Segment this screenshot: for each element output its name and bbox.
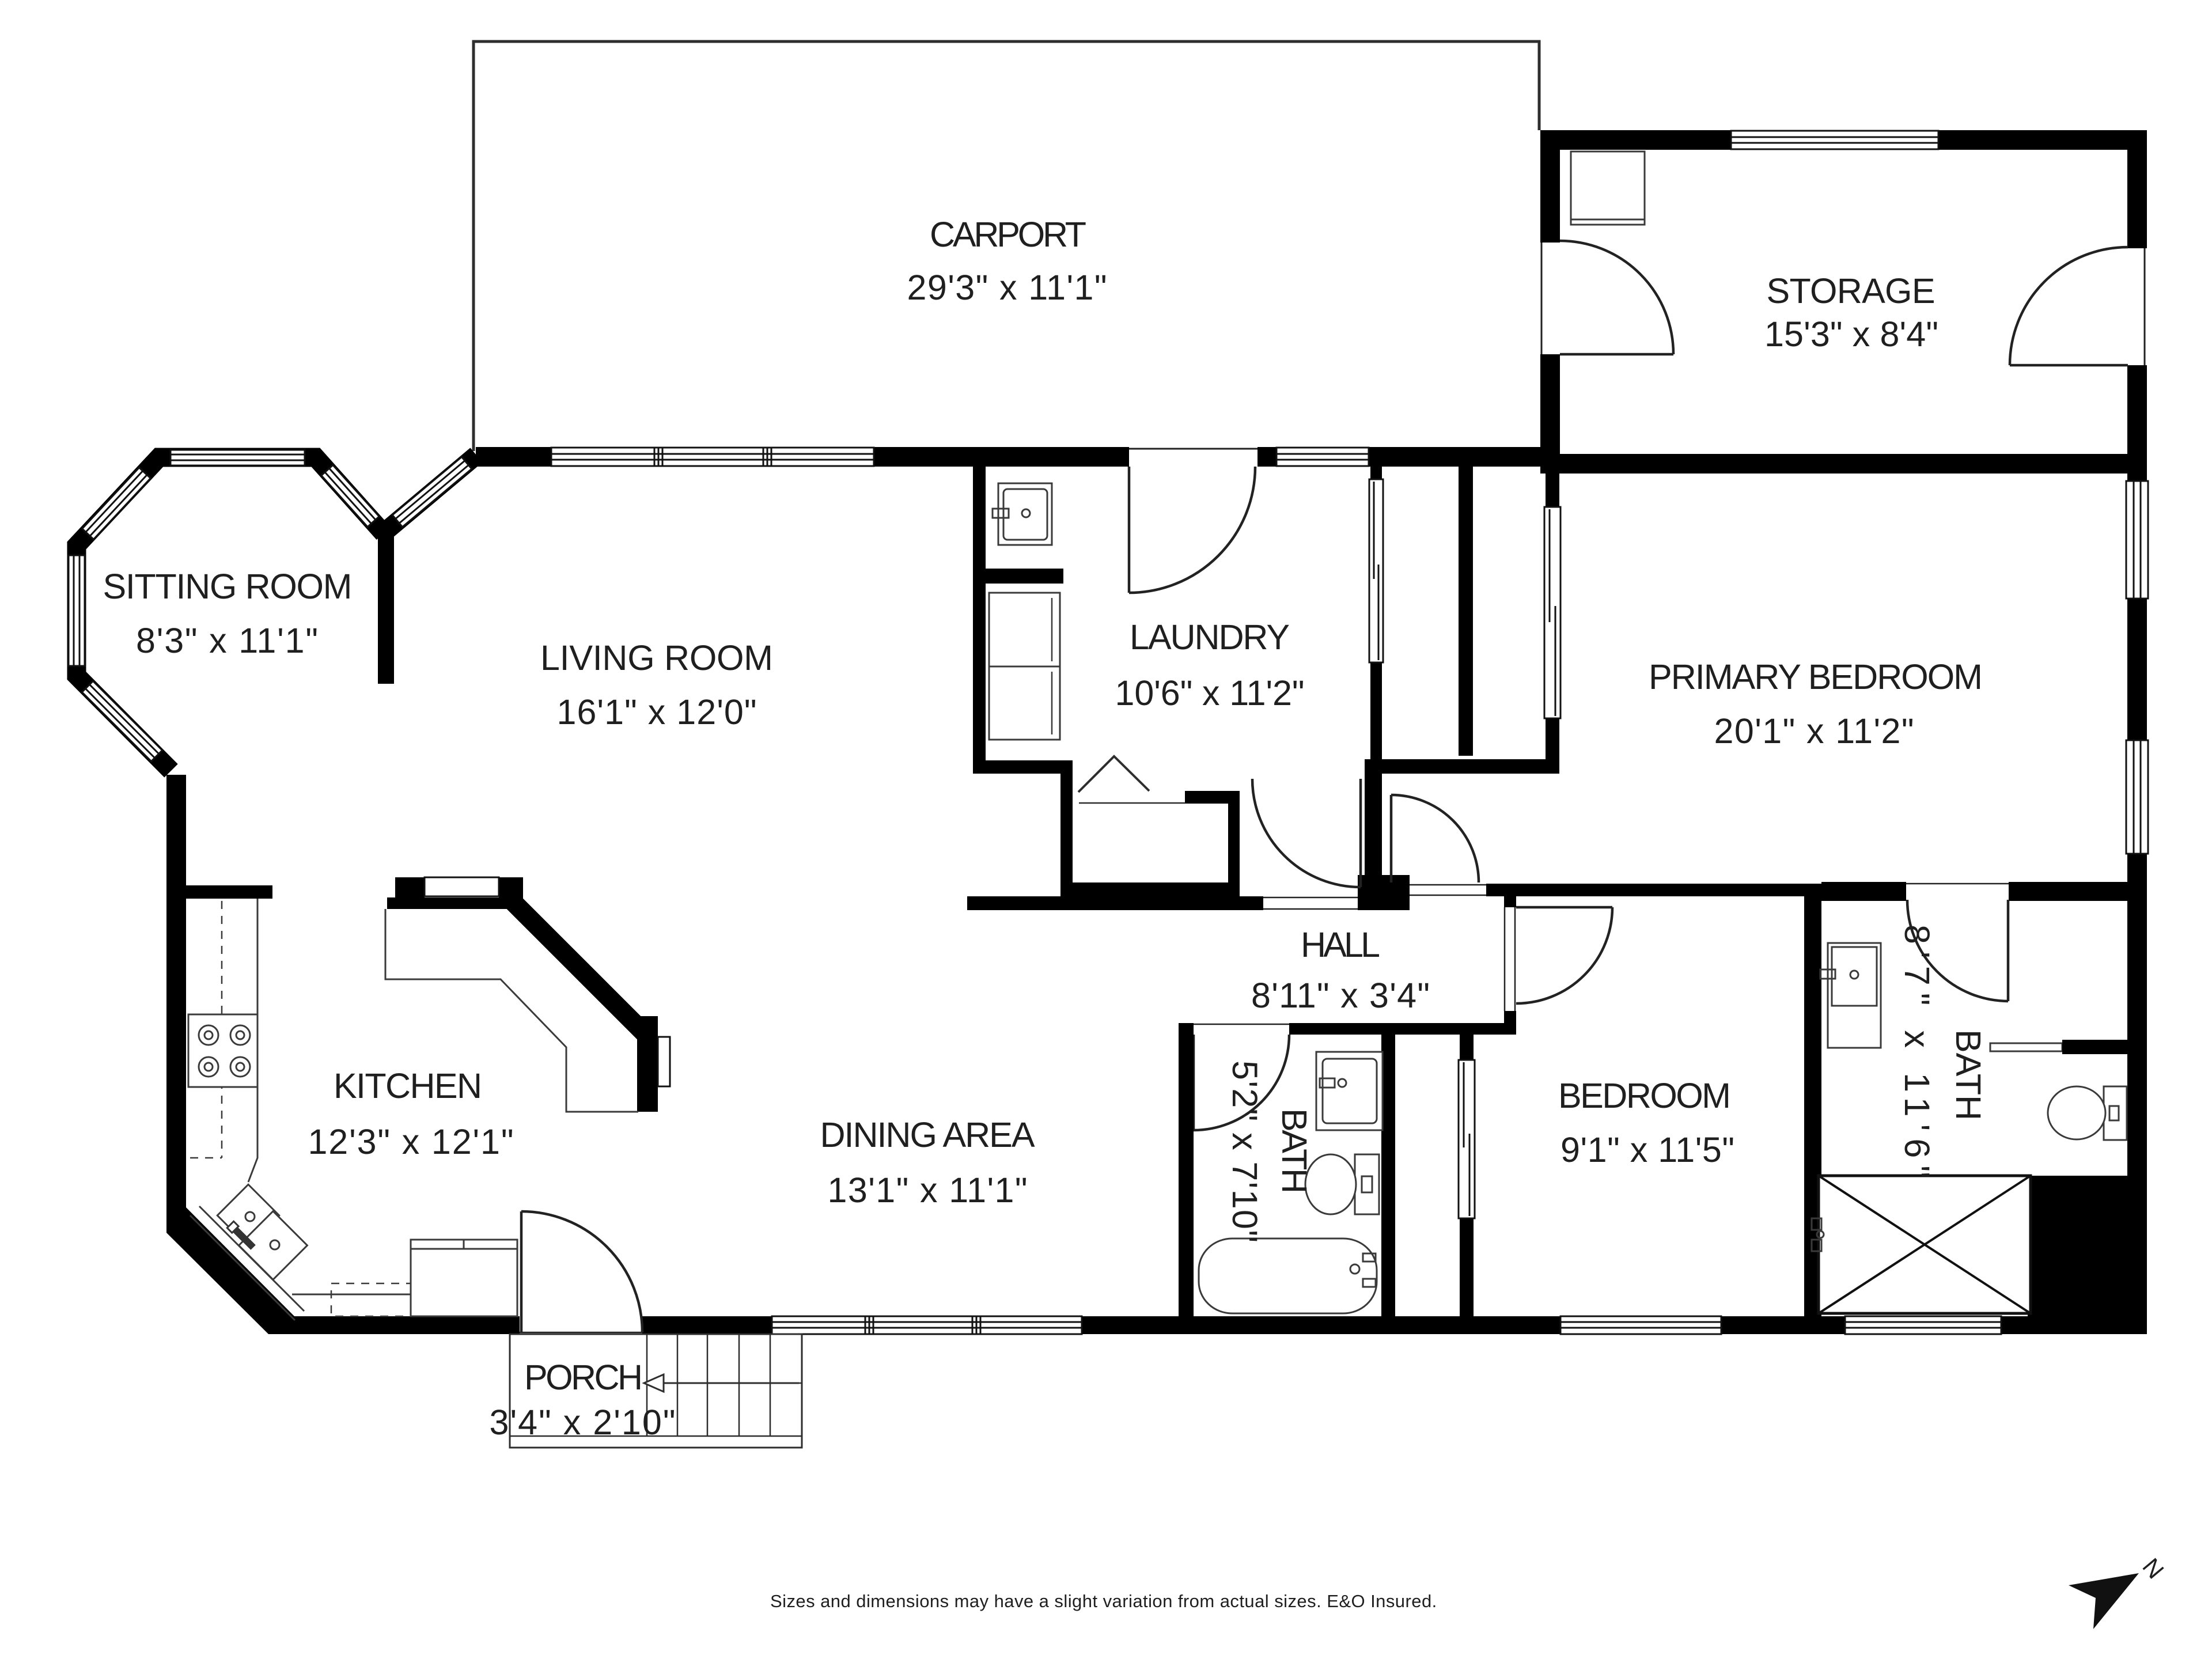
svg-text:HALL: HALL [1301, 925, 1380, 964]
svg-text:20'1" x 11'2": 20'1" x 11'2" [1714, 711, 1914, 751]
svg-text:15'3" x 8'4": 15'3" x 8'4" [1764, 315, 1938, 354]
svg-text:29'3" x 11'1": 29'3" x 11'1" [907, 268, 1107, 307]
svg-text:STORAGE: STORAGE [1767, 271, 1935, 310]
svg-text:LIVING ROOM: LIVING ROOM [540, 638, 773, 677]
svg-text:8'11" x 3'4": 8'11" x 3'4" [1251, 976, 1430, 1015]
svg-text:BATH: BATH [1275, 1108, 1314, 1194]
svg-text:9'1" x 11'5": 9'1" x 11'5" [1560, 1130, 1734, 1169]
svg-text:12'3" x 12'1": 12'3" x 12'1" [308, 1122, 514, 1161]
svg-text:13'1" x 11'1": 13'1" x 11'1" [828, 1171, 1028, 1210]
svg-text:10'6" x 11'2": 10'6" x 11'2" [1115, 673, 1305, 713]
svg-text:5'2" x 7'10": 5'2" x 7'10" [1225, 1060, 1264, 1243]
svg-text:LAUNDRY: LAUNDRY [1130, 618, 1290, 657]
svg-text:DINING AREA: DINING AREA [820, 1115, 1035, 1154]
svg-text:BEDROOM: BEDROOM [1558, 1076, 1731, 1115]
svg-text:PORCH: PORCH [524, 1358, 643, 1397]
svg-text:CARPORT: CARPORT [930, 215, 1086, 254]
svg-text:16'1" x 12'0": 16'1" x 12'0" [557, 692, 757, 732]
svg-text:KITCHEN: KITCHEN [334, 1066, 482, 1105]
svg-text:BATH: BATH [1949, 1029, 1988, 1120]
svg-text:Sizes and dimensions may have: Sizes and dimensions may have a slight v… [770, 1591, 1437, 1611]
svg-text:PRIMARY BEDROOM: PRIMARY BEDROOM [1649, 657, 1983, 696]
svg-text:SITTING ROOM: SITTING ROOM [103, 567, 353, 606]
